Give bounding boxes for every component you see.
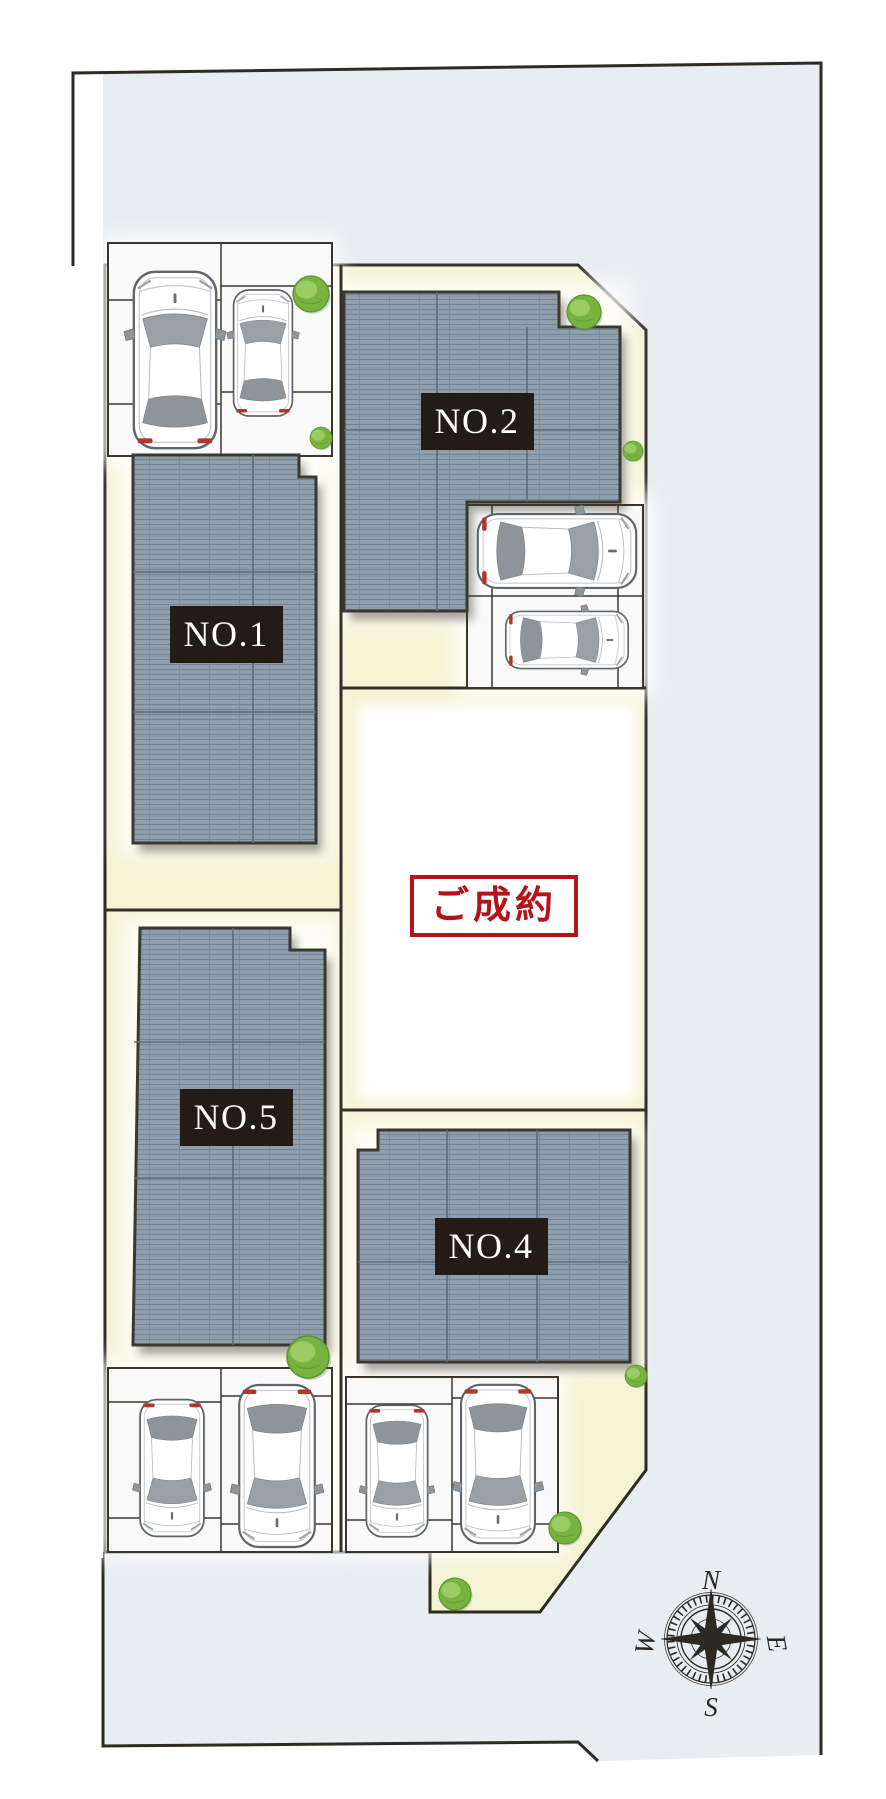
left-margin [0, 266, 103, 1558]
lot-label-no4: NO.4 [435, 1218, 548, 1275]
lot-label-no1-text: NO.1 [184, 614, 269, 654]
car-icon [124, 272, 226, 448]
lot-label-no2-text: NO.2 [435, 401, 520, 441]
lot-label-no4-text: NO.4 [449, 1226, 534, 1266]
car-icon [359, 1405, 435, 1536]
car-icon [132, 1400, 211, 1537]
car-icon [478, 505, 636, 597]
site-plan-canvas: NO.1 NO.2 NO.5 NO.4 ご成約 [0, 0, 886, 1799]
sold-stamp: ご成約 [412, 877, 576, 935]
sold-stamp-text: ご成約 [431, 885, 557, 927]
lot-label-no5-text: NO.5 [194, 1097, 279, 1137]
lot-label-no1: NO.1 [170, 606, 283, 663]
compass-south-label: S [704, 1692, 718, 1722]
compass-north-label: N [701, 1565, 722, 1595]
car-icon [452, 1385, 544, 1543]
car-icon [230, 1385, 324, 1547]
lot-label-no5: NO.5 [180, 1089, 293, 1146]
site-plan-drawing: NO.1 NO.2 NO.5 NO.4 ご成約 [0, 0, 886, 1799]
car-icon [506, 605, 628, 676]
lot-label-no2: NO.2 [421, 393, 534, 450]
car-icon [227, 290, 300, 416]
